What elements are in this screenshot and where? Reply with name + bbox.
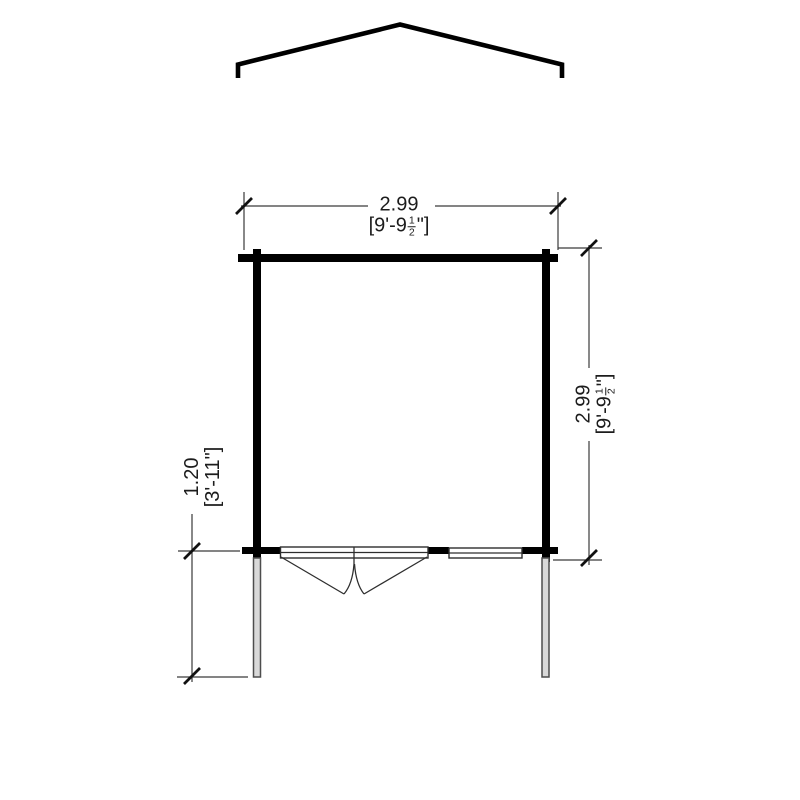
roof-profile-outline xyxy=(238,25,562,79)
depth-fraction: 12 xyxy=(594,387,617,395)
canopy-metric-text: 1.20 xyxy=(182,447,203,508)
canopy-imperial-text: [3'-11"] xyxy=(203,447,224,508)
canopy-dimension xyxy=(177,514,248,684)
wall-right xyxy=(542,249,550,562)
door-leaf-right xyxy=(364,557,427,594)
width-metric-text: 2.99 xyxy=(369,194,430,215)
floor-plan-drawing xyxy=(0,0,800,800)
depth-metric-text: 2.99 xyxy=(573,374,594,435)
window-symbol xyxy=(449,548,522,558)
door-swing-arc-left xyxy=(344,564,354,594)
double-door-symbol xyxy=(281,547,429,594)
wall-bottom-right-segment xyxy=(522,547,558,554)
wall-bottom-left-segment xyxy=(242,547,281,554)
floor-plan-page: 2.99 [9'-912"] 2.99 [9'-912"] 1.20 [3'-1… xyxy=(0,0,800,800)
canopy-post-left xyxy=(254,558,261,677)
width-dimension-label: 2.99 [9'-912"] xyxy=(369,194,430,238)
depth-imperial-text: [9'-912"] xyxy=(594,374,617,435)
depth-dimension-label: 2.99 [9'-912"] xyxy=(573,374,617,435)
door-swing-arc-right xyxy=(355,564,365,594)
door-leaf-left xyxy=(281,557,344,594)
width-imperial-text: [9'-912"] xyxy=(369,215,430,238)
wall-top xyxy=(238,254,558,262)
width-fraction: 12 xyxy=(408,215,416,238)
canopy-post-right xyxy=(542,558,549,677)
wall-bottom-middle-segment xyxy=(428,547,449,554)
wall-left xyxy=(253,249,261,562)
canopy-dimension-label: 1.20 [3'-11"] xyxy=(182,447,224,508)
